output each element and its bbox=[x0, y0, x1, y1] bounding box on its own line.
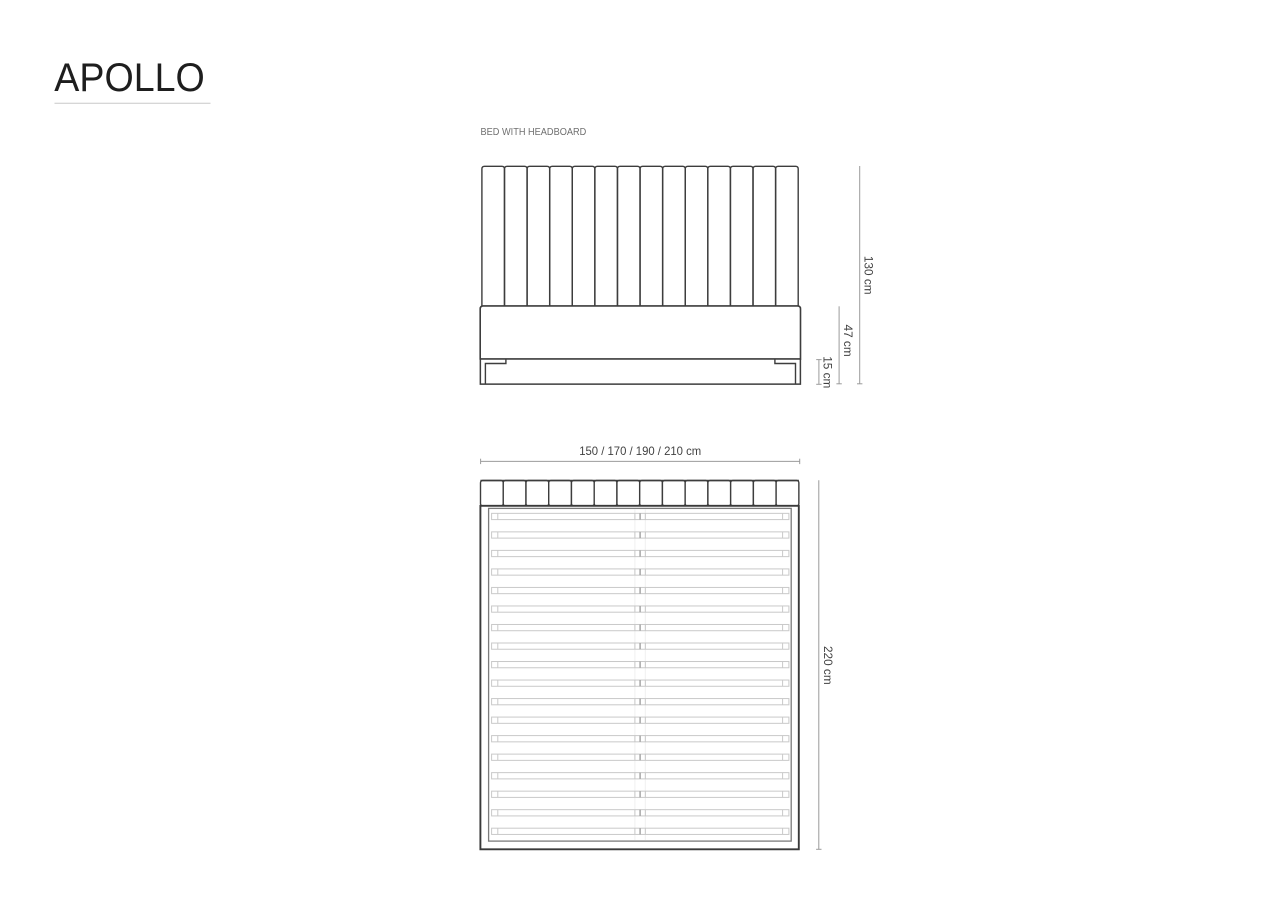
svg-text:220 cm: 220 cm bbox=[821, 646, 835, 685]
svg-text:APOLLO: APOLLO bbox=[54, 56, 205, 100]
svg-text:150 / 170 / 190 / 210 cm: 150 / 170 / 190 / 210 cm bbox=[579, 444, 701, 458]
svg-text:15 cm: 15 cm bbox=[821, 356, 835, 388]
svg-text:130 cm: 130 cm bbox=[862, 256, 876, 295]
svg-text:47 cm: 47 cm bbox=[841, 325, 855, 357]
svg-text:BED WITH HEADBOARD: BED WITH HEADBOARD bbox=[481, 127, 587, 138]
